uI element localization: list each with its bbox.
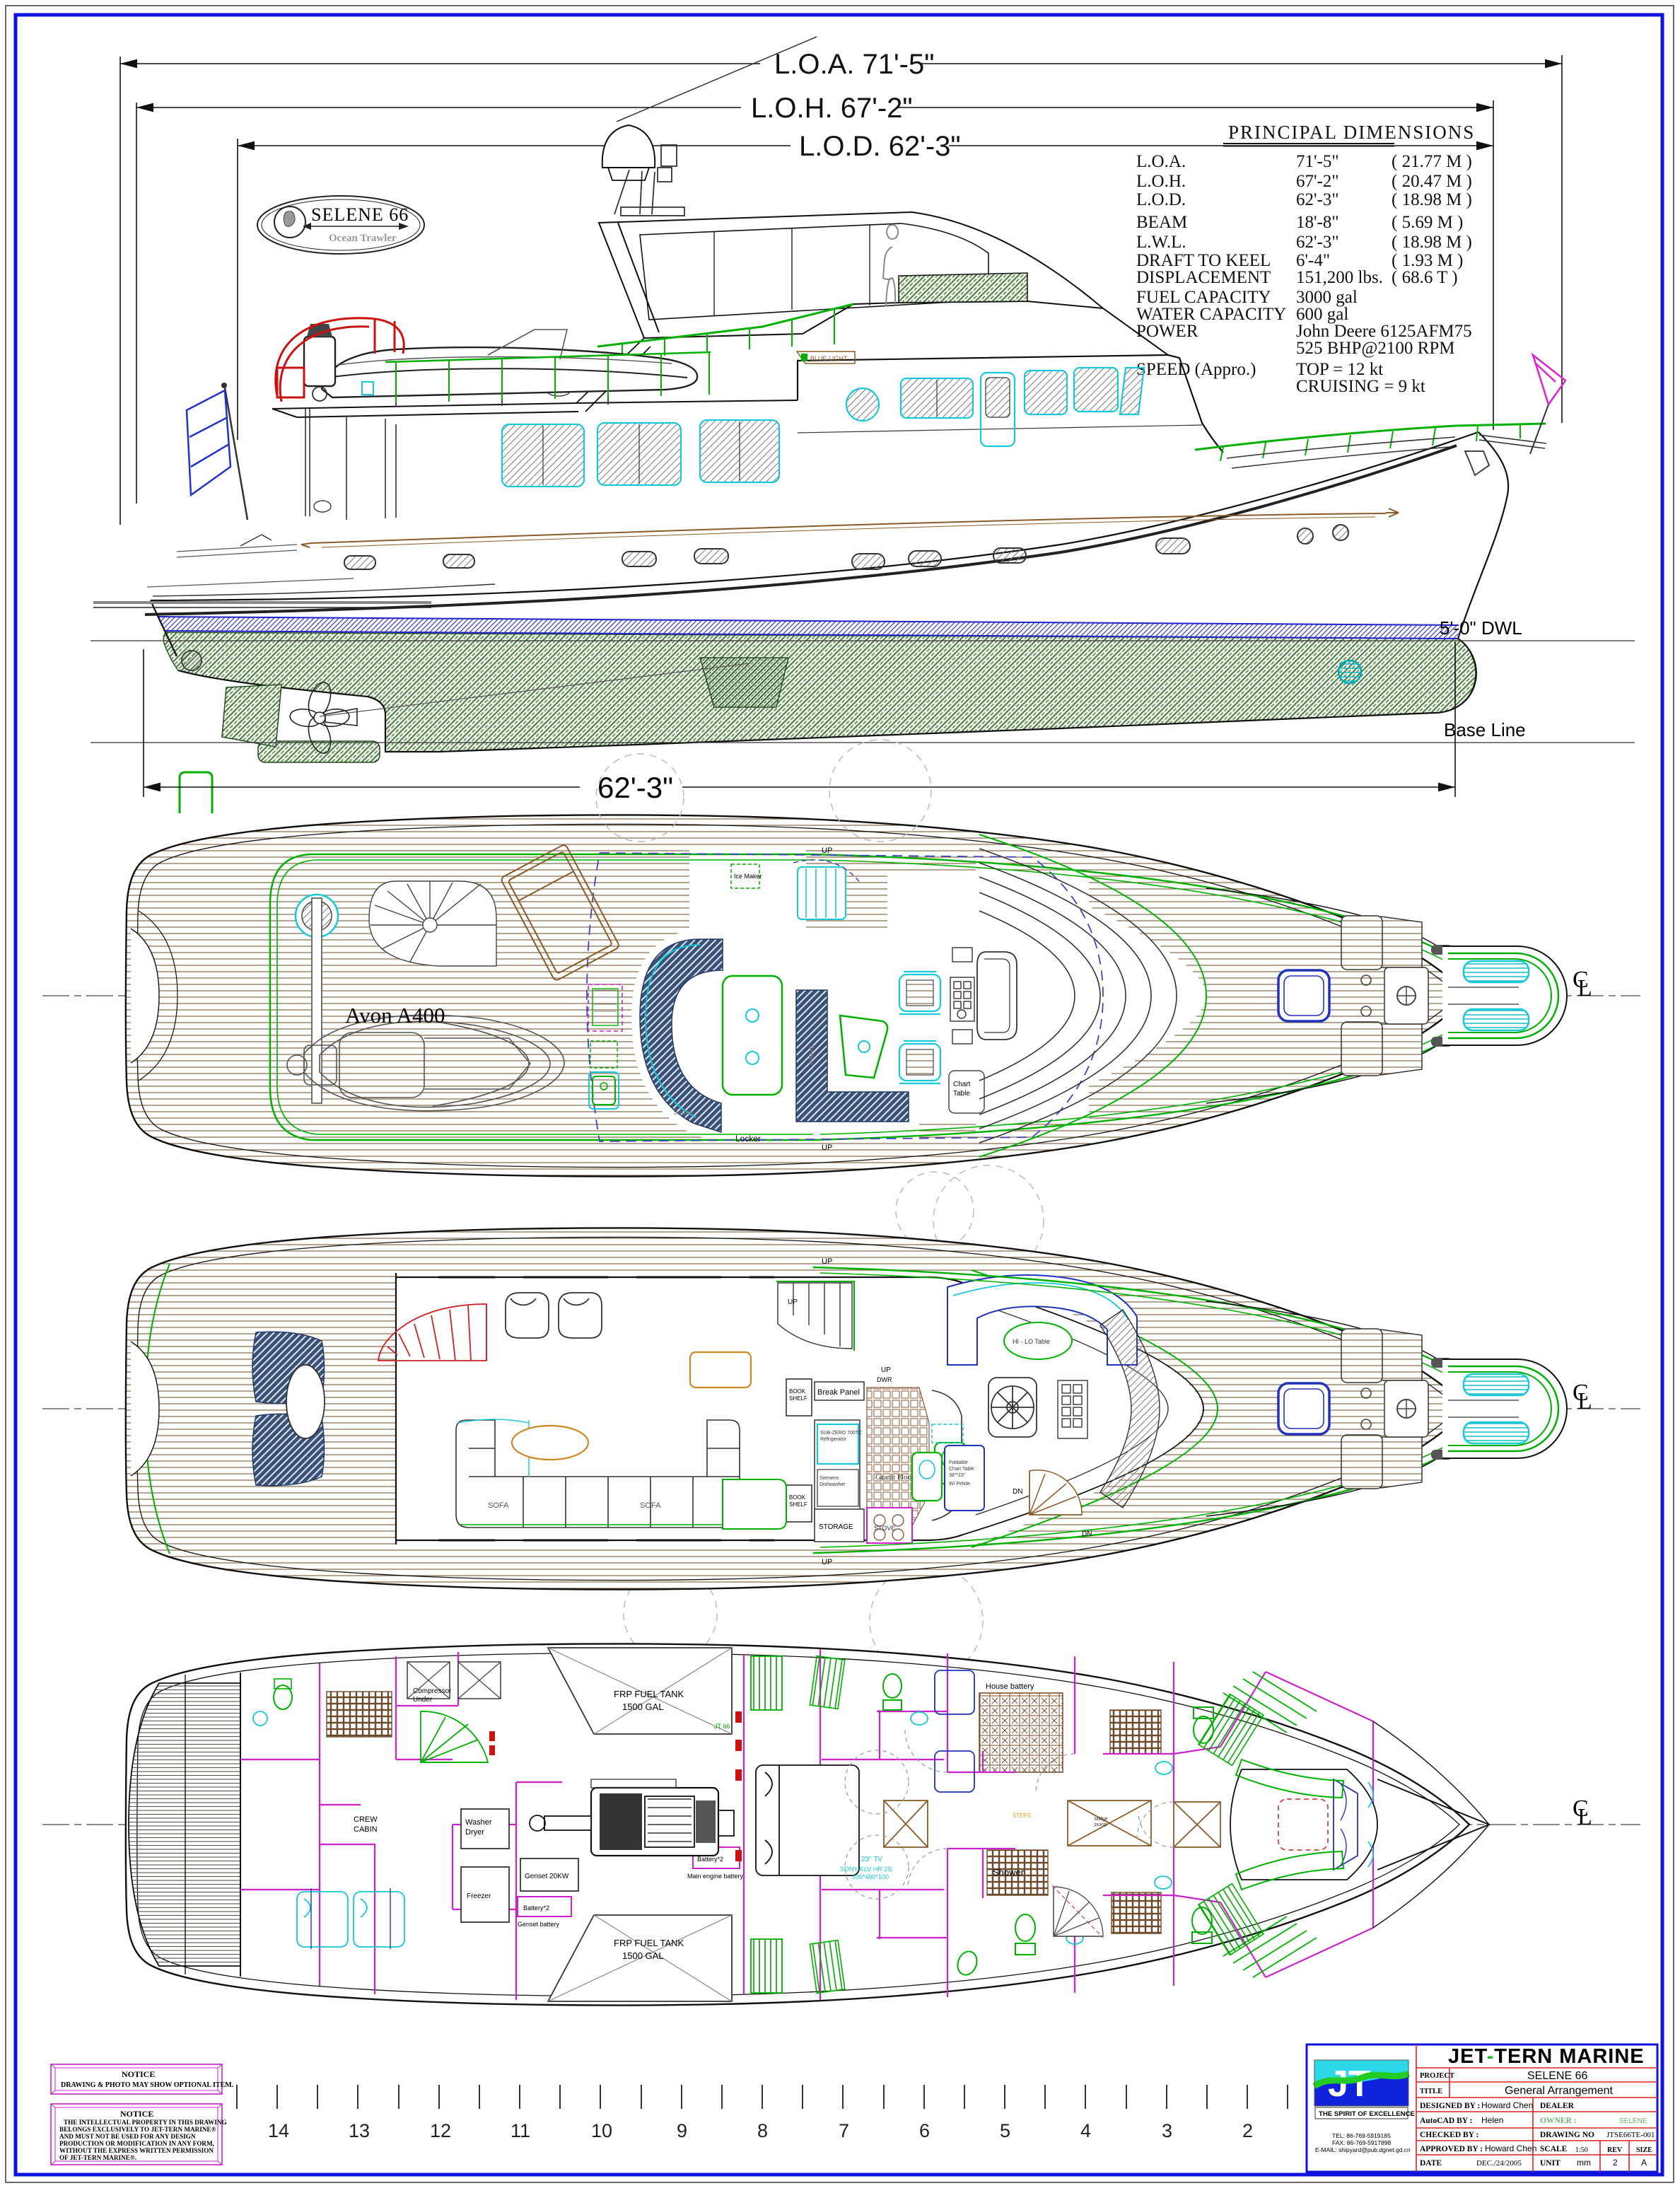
svg-text:5'-0" DWL: 5'-0" DWL [1440, 617, 1522, 639]
svg-text:House battery: House battery [986, 1682, 1034, 1691]
svg-text:5: 5 [1000, 2120, 1010, 2141]
svg-text:JET-TERN MARINE: JET-TERN MARINE [1448, 2045, 1645, 2068]
svg-text:BEAM: BEAM [1136, 213, 1187, 232]
svg-text:DEC./24/2005: DEC./24/2005 [1476, 2159, 1522, 2168]
svg-text:SUB-ZERO 700TC: SUB-ZERO 700TC [820, 1431, 862, 1436]
svg-text:FRP FUEL TANK: FRP FUEL TANK [614, 1689, 684, 1699]
svg-text:Break Panel: Break Panel [817, 1388, 860, 1397]
svg-text:6'-4": 6'-4" [1296, 251, 1330, 270]
svg-text:Washer: Washer [465, 1818, 492, 1827]
svg-text:WATER CAPACITY: WATER CAPACITY [1136, 305, 1286, 324]
svg-text:Chart Table: Chart Table [949, 1467, 974, 1472]
svg-text:Howard Chen: Howard Chen [1481, 2100, 1533, 2110]
svg-text:DRAFT TO KEEL: DRAFT TO KEEL [1136, 251, 1271, 270]
svg-text:62'-3": 62'-3" [597, 771, 673, 804]
svg-text:Dryer: Dryer [465, 1828, 484, 1837]
svg-text:DEALER: DEALER [1540, 2102, 1575, 2110]
svg-text:Refrigerator: Refrigerator [820, 1437, 847, 1442]
svg-text:( 18.98 M ): ( 18.98 M ) [1392, 190, 1472, 209]
svg-text:CREW: CREW [354, 1815, 378, 1824]
svg-text:L.W.L.: L.W.L. [1136, 233, 1186, 252]
svg-text:8: 8 [757, 2120, 768, 2141]
svg-text:JT: JT [1328, 2064, 1371, 2105]
svg-text:NOTICE: NOTICE [122, 2069, 155, 2079]
svg-text:600 gal: 600 gal [1296, 305, 1348, 324]
svg-text:DWR: DWR [877, 1376, 892, 1383]
svg-text:SELENE: SELENE [1619, 2117, 1647, 2125]
svg-text:( 68.6 T ): ( 68.6 T ) [1392, 268, 1458, 287]
svg-text:W/ Pelide: W/ Pelide [949, 1482, 970, 1487]
svg-text:2: 2 [1613, 2158, 1618, 2168]
svg-text:151,200 lbs.: 151,200 lbs. [1296, 268, 1383, 287]
svg-text:Granit Floor: Granit Floor [875, 1473, 914, 1482]
svg-text:DN: DN [1013, 1488, 1022, 1496]
svg-text:PRINCIPAL DIMENSIONS: PRINCIPAL DIMENSIONS [1228, 122, 1475, 143]
svg-text:bildge: bildge [1095, 1817, 1108, 1822]
svg-text:SELENE 66: SELENE 66 [311, 204, 409, 225]
svg-text:Settee: Settee [673, 1109, 694, 1117]
svg-text:DRAWING NO: DRAWING NO [1540, 2131, 1594, 2139]
svg-text:OWNER :: OWNER : [1540, 2117, 1576, 2125]
svg-text:SCALE: SCALE [1540, 2145, 1568, 2153]
svg-text:REV: REV [1607, 2146, 1623, 2154]
svg-text:THE INTELLECTUAL PROPERTY IN T: THE INTELLECTUAL PROPERTY IN THIS DRAWIN… [64, 2119, 227, 2126]
svg-text:L.O.D. 62'-3": L.O.D. 62'-3" [799, 131, 961, 162]
svg-text:38"*23": 38"*23" [949, 1473, 966, 1478]
svg-text:pump: pump [1095, 1822, 1107, 1827]
svg-text:CRUISING = 9 kt: CRUISING = 9 kt [1296, 377, 1425, 396]
svg-text:Dishwasher: Dishwasher [819, 1482, 846, 1487]
svg-text:L.O.H. 67'-2": L.O.H. 67'-2" [751, 93, 913, 124]
svg-text:( 20.47 M ): ( 20.47 M ) [1392, 172, 1472, 191]
svg-text:( 1.93 M ): ( 1.93 M ) [1392, 251, 1463, 270]
svg-text:THE SPIRIT OF EXCELLENCE: THE SPIRIT OF EXCELLENCE [1319, 2110, 1416, 2118]
svg-text:14: 14 [268, 2120, 289, 2141]
svg-text:Compressor: Compressor [413, 1687, 452, 1695]
svg-text:Chart: Chart [953, 1081, 971, 1088]
svg-text:1500 GAL: 1500 GAL [622, 1702, 664, 1712]
svg-text:BOOK: BOOK [789, 1494, 806, 1501]
svg-text:UP: UP [881, 1366, 891, 1374]
svg-text:( 21.77 M ): ( 21.77 M ) [1392, 152, 1472, 171]
svg-text:BOOK: BOOK [789, 1388, 806, 1395]
svg-text:( 5.69 M ): ( 5.69 M ) [1392, 213, 1463, 232]
svg-text:18'-8": 18'-8" [1296, 213, 1339, 232]
svg-text:SHELF: SHELF [789, 1395, 807, 1402]
svg-text:L.O.A.: L.O.A. [1136, 152, 1186, 171]
svg-text:10: 10 [591, 2120, 612, 2141]
svg-text:STEPS: STEPS [1013, 1813, 1031, 1819]
svg-text:SOFA: SOFA [640, 1501, 661, 1510]
svg-text:PROJECT: PROJECT [1420, 2072, 1454, 2080]
svg-text:Foldable: Foldable [949, 1460, 968, 1465]
svg-text:SONY KLV HR 2S: SONY KLV HR 2S [840, 1866, 892, 1873]
svg-text:FUEL CAPACITY: FUEL CAPACITY [1136, 288, 1271, 307]
svg-text:APPROVED BY :: APPROVED BY : [1420, 2145, 1483, 2153]
svg-text:6: 6 [919, 2120, 930, 2141]
svg-text:1:50: 1:50 [1575, 2146, 1588, 2154]
svg-text:Battery*2: Battery*2 [697, 1856, 723, 1863]
svg-text:UNIT: UNIT [1540, 2159, 1561, 2168]
svg-text:4: 4 [1080, 2120, 1091, 2141]
svg-text:L.O.D.: L.O.D. [1136, 190, 1186, 209]
svg-text:Siemens: Siemens [819, 1476, 839, 1481]
svg-text:mm: mm [1577, 2158, 1591, 2168]
svg-text:BLUE LIGHT: BLUE LIGHT [810, 355, 848, 362]
svg-text:SOFA: SOFA [488, 1501, 509, 1510]
svg-text:FAX: 86-769-5917898: FAX: 86-769-5917898 [1332, 2139, 1391, 2146]
svg-text:UP: UP [822, 1257, 832, 1266]
svg-text:FRP FUEL TANK: FRP FUEL TANK [614, 1938, 684, 1948]
svg-text:Table: Table [953, 1090, 970, 1098]
svg-text:Ice Maker: Ice Maker [734, 873, 762, 880]
svg-text:A: A [1641, 2158, 1647, 2168]
svg-text:3000 gal: 3000 gal [1296, 288, 1358, 307]
svg-text:AutoCAD BY :: AutoCAD BY : [1420, 2117, 1472, 2125]
svg-text:JT 66: JT 66 [714, 1723, 730, 1730]
svg-text:Settee: Settee [807, 1045, 815, 1065]
svg-text:Battery*2: Battery*2 [523, 1904, 549, 1912]
svg-text:3: 3 [1162, 2120, 1172, 2141]
svg-text:CABIN: CABIN [354, 1825, 378, 1834]
svg-text:596*480*100: 596*480*100 [852, 1873, 889, 1880]
svg-text:UP: UP [822, 1144, 832, 1152]
svg-text:UP: UP [788, 1298, 798, 1306]
svg-text:STOVE: STOVE [874, 1525, 895, 1532]
svg-text:Locker: Locker [735, 1134, 761, 1144]
svg-text:AND MUST NOT BE USED FOR ANY D: AND MUST NOT BE USED FOR ANY DESIGN [59, 2133, 196, 2140]
svg-text:TOP = 12 kt: TOP = 12 kt [1296, 360, 1383, 379]
svg-text:DRAWING & PHOTO MAY SHOW OPTIO: DRAWING & PHOTO MAY SHOW OPTIONAL ITEM. [61, 2081, 234, 2089]
svg-text:DESIGNED BY :: DESIGNED BY : [1420, 2102, 1480, 2110]
svg-text:E-MAIL: shipyard@pub.dgnet.gd.: E-MAIL: shipyard@pub.dgnet.gd.cn [1315, 2146, 1411, 2153]
svg-text:Genset battery: Genset battery [518, 1921, 560, 1928]
svg-text:DATE: DATE [1420, 2159, 1442, 2168]
svg-text:Under: Under [413, 1696, 433, 1704]
svg-text:UP: UP [822, 847, 832, 855]
svg-text:Avon A400: Avon A400 [345, 1003, 445, 1028]
svg-text:Shower: Shower [993, 1867, 1025, 1878]
svg-text:Freezer: Freezer [467, 1892, 491, 1900]
svg-text:23" TV: 23" TV [861, 1856, 882, 1863]
svg-text:L.O.A. 71'-5": L.O.A. 71'-5" [774, 49, 934, 80]
svg-text:Ocean Trawler: Ocean Trawler [329, 233, 397, 244]
svg-text:John Deere 6125AFM75: John Deere 6125AFM75 [1296, 322, 1472, 341]
svg-text:NOTICE: NOTICE [120, 2109, 153, 2119]
svg-text:TITLE: TITLE [1420, 2088, 1442, 2095]
svg-text:DN: DN [1082, 1530, 1092, 1538]
svg-text:11: 11 [511, 2120, 530, 2141]
svg-text:SELENE 66: SELENE 66 [1527, 2070, 1587, 2082]
svg-text:OF JET-TERN MARINE®.: OF JET-TERN MARINE®. [59, 2154, 136, 2161]
svg-text:DISPLACEMENT: DISPLACEMENT [1136, 268, 1271, 287]
svg-text:( 18.98 M ): ( 18.98 M ) [1392, 233, 1472, 252]
svg-text:9: 9 [677, 2120, 687, 2141]
svg-text:L.O.H.: L.O.H. [1136, 172, 1186, 191]
svg-text:71'-5": 71'-5" [1296, 152, 1339, 171]
svg-text:SIZE: SIZE [1636, 2146, 1652, 2154]
svg-text:62'-3": 62'-3" [1296, 233, 1339, 252]
svg-text:PRODUCTION OR MODIFICATION IN: PRODUCTION OR MODIFICATION IN ANY FORM, [59, 2140, 214, 2147]
svg-text:67'-2": 67'-2" [1296, 172, 1339, 191]
svg-text:13: 13 [349, 2120, 370, 2141]
svg-text:STORAGE: STORAGE [819, 1523, 853, 1531]
svg-text:2: 2 [1242, 2120, 1253, 2141]
svg-text:Base Line: Base Line [1444, 719, 1526, 740]
svg-text:JTSE66TE-001: JTSE66TE-001 [1606, 2131, 1655, 2139]
svg-text:BELONGS EXCLUSIVELY TO JET-TER: BELONGS EXCLUSIVELY TO JET-TERN MARINE® [59, 2126, 216, 2133]
svg-text:Genset 20KW: Genset 20KW [525, 1873, 569, 1880]
svg-text:HI - LO Table: HI - LO Table [1013, 1338, 1050, 1345]
svg-text:7: 7 [839, 2120, 849, 2141]
svg-text:CHECKED BY :: CHECKED BY : [1420, 2131, 1478, 2139]
svg-text:General Arrangement: General Arrangement [1505, 2085, 1614, 2097]
svg-text:SPEED (Appro.): SPEED (Appro.) [1136, 360, 1256, 379]
svg-text:SHELF: SHELF [789, 1501, 807, 1508]
svg-text:UP: UP [822, 1558, 832, 1566]
svg-text:1500 GAL: 1500 GAL [622, 1950, 664, 1961]
svg-text:525 BHP@2100 RPM: 525 BHP@2100 RPM [1296, 339, 1454, 358]
svg-text:Helen: Helen [1481, 2115, 1503, 2125]
svg-text:Howard Chen: Howard Chen [1485, 2143, 1536, 2153]
svg-text:62'-3": 62'-3" [1296, 190, 1339, 209]
svg-text:Main engine battery: Main engine battery [687, 1873, 744, 1880]
svg-text:TEL: 86-769-5919185: TEL: 86-769-5919185 [1332, 2132, 1391, 2139]
svg-text:12: 12 [430, 2120, 451, 2141]
svg-text:WITHOUT THE EXPRESS WRITTEN PE: WITHOUT THE EXPRESS WRITTEN PERMISSION [59, 2147, 214, 2154]
